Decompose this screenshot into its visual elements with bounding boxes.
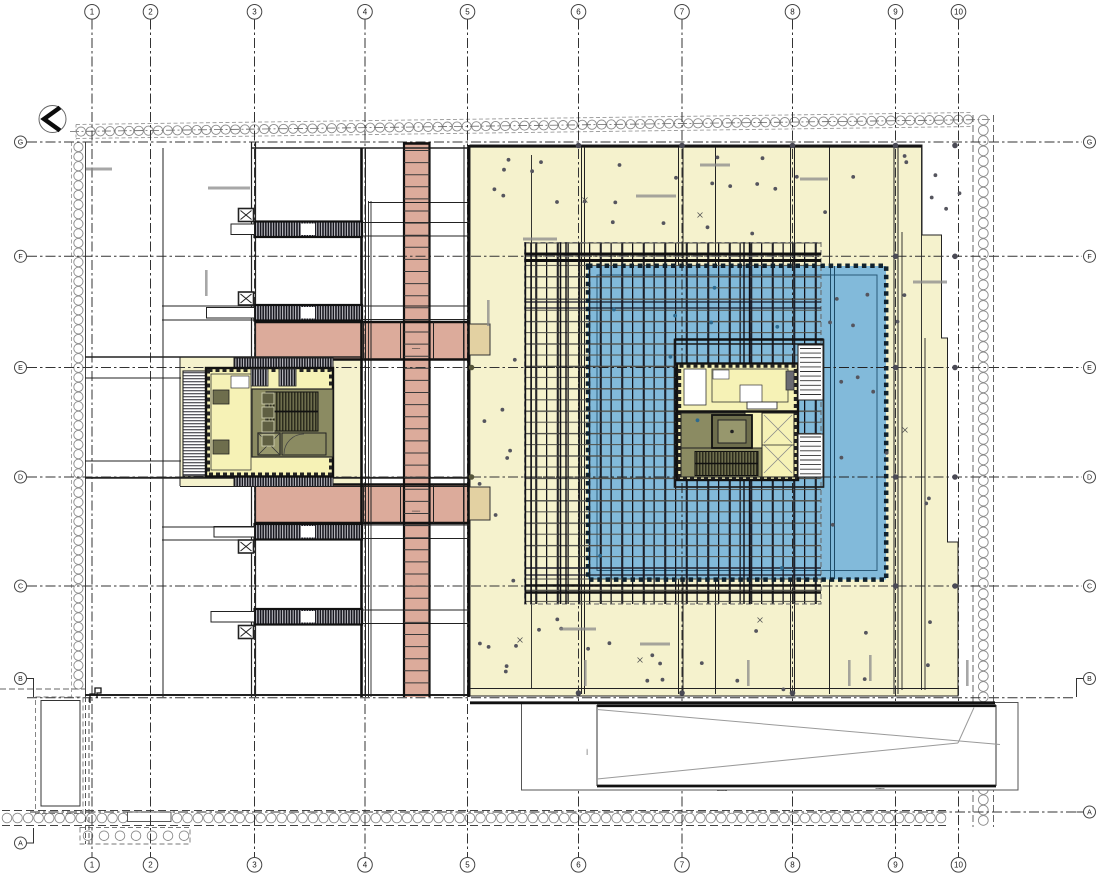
svg-text:9: 9 [893,861,898,870]
svg-text:A: A [1087,810,1092,817]
svg-text:8: 8 [790,8,795,17]
svg-text:9: 9 [893,8,898,17]
svg-text:▪▪▪▪▪▪▪▪: ▪▪▪▪▪▪▪▪ [412,509,421,513]
svg-text:6: 6 [576,861,581,870]
svg-text:1: 1 [90,8,95,17]
svg-text:10: 10 [954,861,963,870]
svg-text:C: C [1087,584,1092,591]
svg-text:3: 3 [252,861,257,870]
svg-text:1: 1 [90,861,95,870]
svg-text:▪▪▪▪▪▪▪▪▪: ▪▪▪▪▪▪▪▪▪ [717,789,727,793]
svg-text:E: E [1087,365,1092,372]
svg-text:10: 10 [954,8,963,17]
svg-text:F: F [18,254,22,261]
svg-text:B: B [18,676,23,683]
svg-text:G: G [1087,140,1092,147]
svg-text:▪▪▪▪▪▪▪▪: ▪▪▪▪▪▪▪▪ [875,787,884,791]
svg-text:7: 7 [680,8,685,17]
svg-text:2: 2 [148,861,153,870]
svg-text:B: B [1087,676,1092,683]
svg-text:4: 4 [363,8,368,17]
svg-text:D: D [1087,475,1092,482]
svg-text:E: E [18,365,23,372]
svg-text:7: 7 [680,861,685,870]
svg-text:D: D [18,475,23,482]
svg-text:F: F [1087,254,1091,261]
svg-text:G: G [18,140,23,147]
svg-text:A: A [18,841,23,848]
svg-text:▪▪▪▪▪▪▪▪: ▪▪▪▪▪▪▪▪ [412,347,421,351]
svg-text:4: 4 [363,861,368,870]
svg-text:C: C [18,584,23,591]
svg-text:8: 8 [790,861,795,870]
svg-text:3: 3 [252,8,257,17]
svg-text:2: 2 [148,8,153,17]
svg-text:▪▪▪▪▪▪: ▪▪▪▪▪▪ [585,749,589,755]
svg-text:5: 5 [465,861,470,870]
svg-text:6: 6 [576,8,581,17]
svg-text:5: 5 [465,8,470,17]
